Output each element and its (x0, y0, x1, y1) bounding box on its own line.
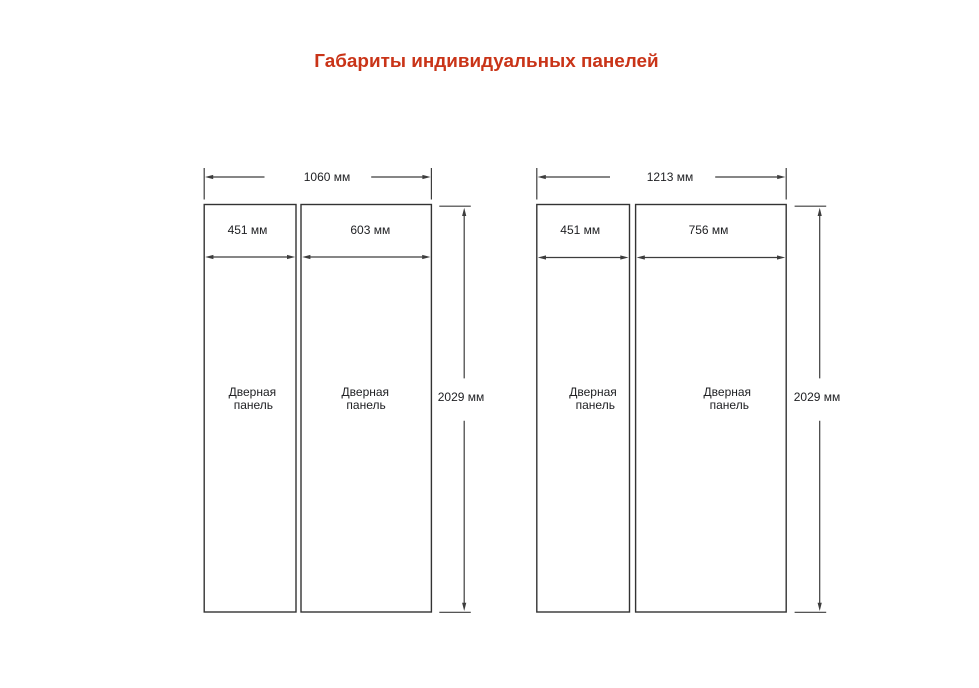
svg-text:панель: панель (234, 398, 273, 412)
svg-text:2029 мм: 2029 мм (794, 390, 841, 404)
svg-text:451 мм: 451 мм (228, 223, 268, 237)
svg-text:1213 мм: 1213 мм (647, 170, 694, 184)
svg-text:панель: панель (346, 398, 385, 412)
svg-text:603 мм: 603 мм (350, 223, 390, 237)
svg-text:панель: панель (576, 398, 615, 412)
svg-text:панель: панель (710, 398, 749, 412)
svg-text:2029 мм: 2029 мм (438, 390, 485, 404)
svg-text:1060 мм: 1060 мм (304, 170, 351, 184)
svg-text:756 мм: 756 мм (689, 223, 729, 237)
svg-text:Габариты индивидуальных панеле: Габариты индивидуальных панелей (314, 51, 658, 72)
svg-text:451 мм: 451 мм (560, 223, 600, 237)
